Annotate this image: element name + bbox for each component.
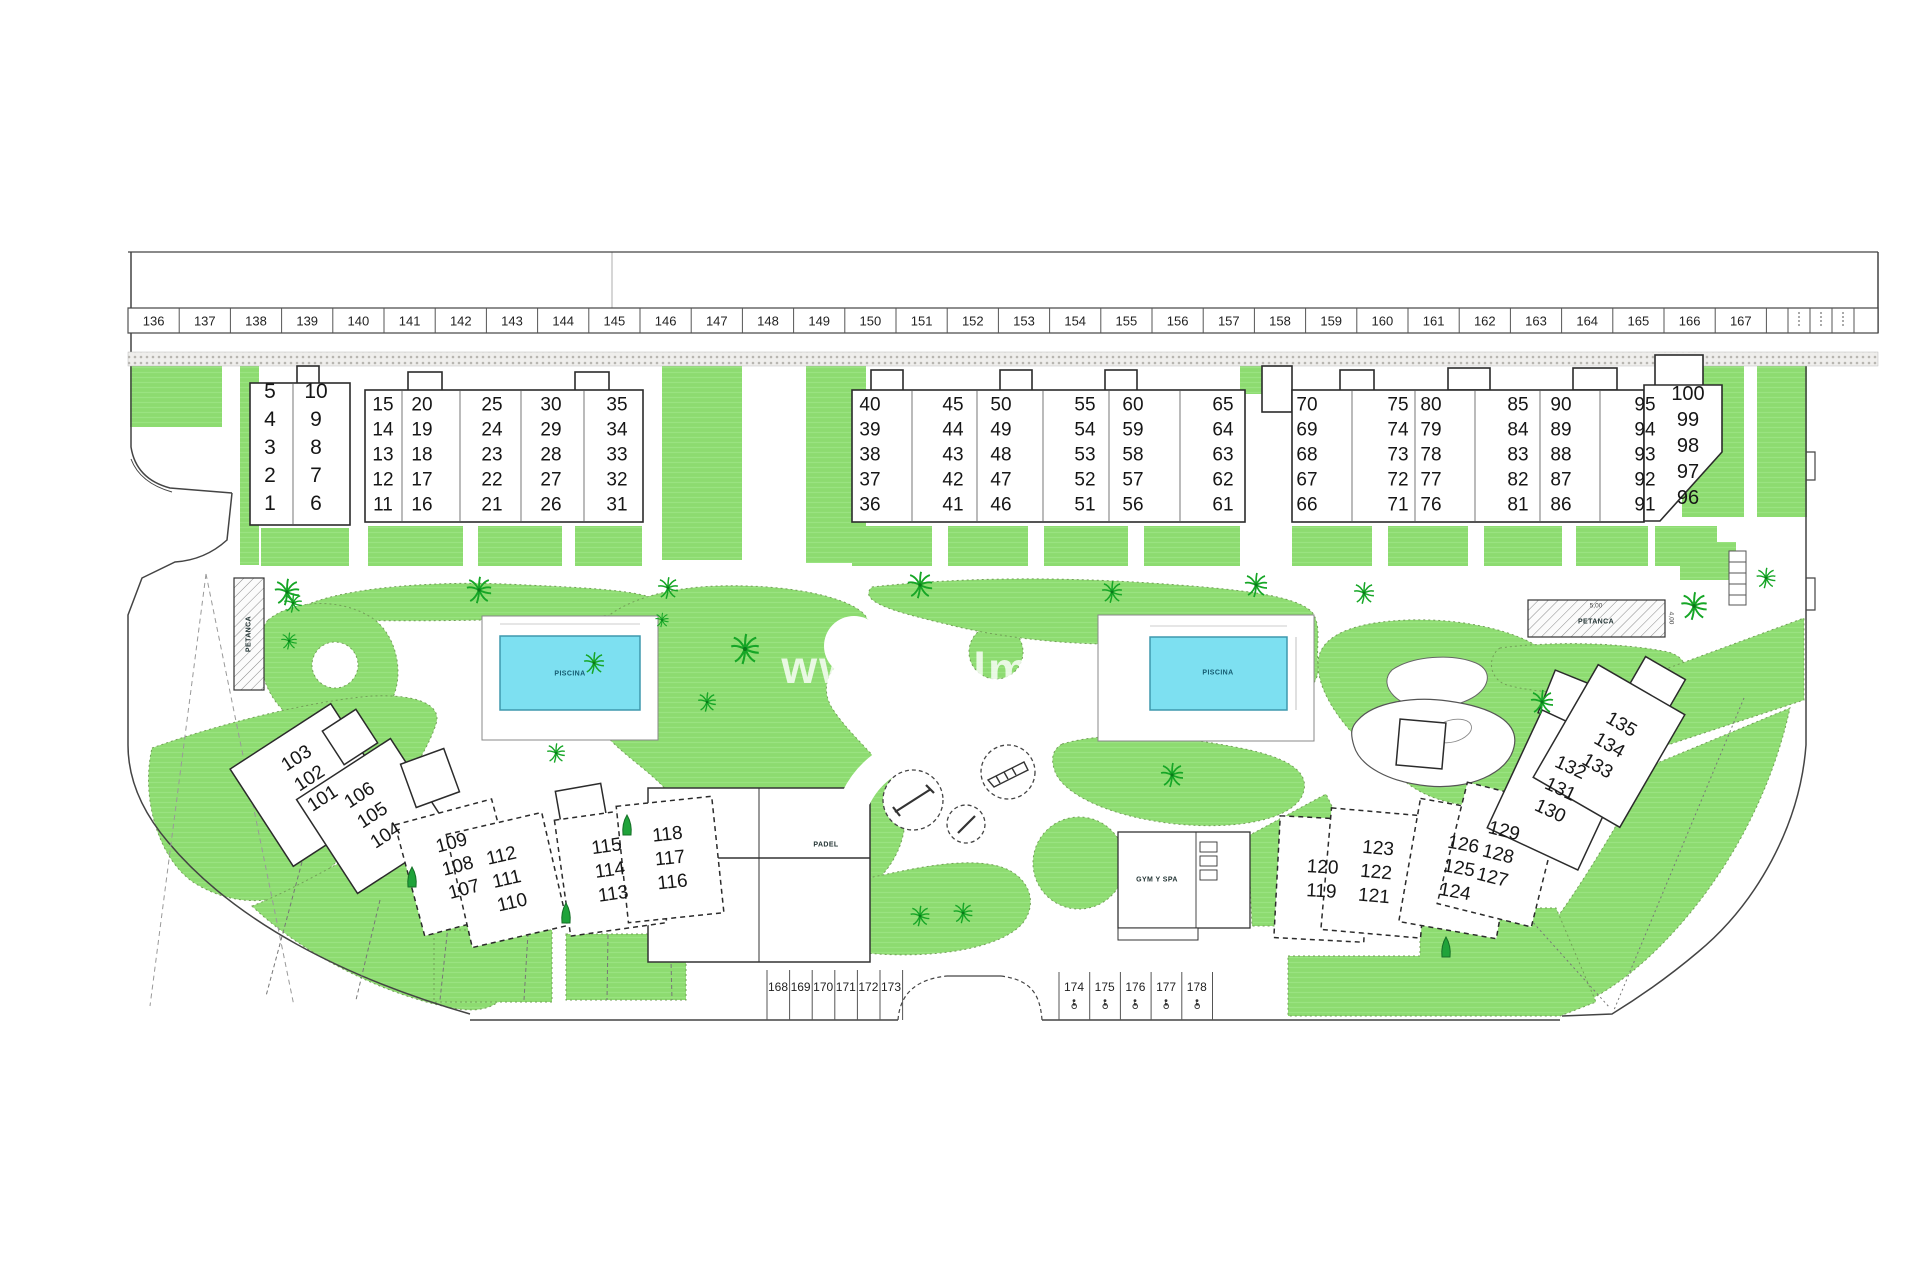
parking-space-label: 157: [1218, 313, 1240, 328]
sidewalk-band: [128, 352, 1878, 366]
unit-column: 20 19 18 17 16: [411, 393, 432, 518]
wheelchair-icon: [1133, 999, 1138, 1008]
parking-strip-top: [128, 252, 1878, 366]
unit-column: 90 89 88 87 86: [1550, 393, 1571, 518]
palm-icon: [1681, 592, 1706, 620]
parking-space-label: 172: [858, 980, 878, 994]
lawn-ring-hole: [312, 642, 358, 688]
unit-column: 45 44 43 42 41: [942, 393, 963, 518]
unit-group: 120 119: [1305, 855, 1339, 905]
unit-column: 95 94 93 92 91: [1634, 393, 1655, 518]
padel-label: PADEL: [813, 842, 838, 849]
parking-space-label: 156: [1167, 313, 1189, 328]
unit-column: 10 9 8 7 6: [304, 378, 327, 518]
unit-column: 70 69 68 67 66: [1296, 393, 1317, 518]
unit-column: 5 4 3 2 1: [264, 378, 276, 518]
site-plan: www dpalme PISCINA PISCINA PETANCA 5,00 …: [0, 0, 1920, 1280]
pool-west-label: PISCINA: [554, 671, 585, 678]
parking-space-label: 150: [860, 313, 882, 328]
parking-space-label: 141: [399, 313, 421, 328]
wheelchair-icon: [1164, 999, 1169, 1008]
parking-space-label: 138: [245, 313, 267, 328]
parking-space-label: 163: [1525, 313, 1547, 328]
parking-space-label: 171: [836, 980, 856, 994]
parking-space-label: 168: [768, 980, 788, 994]
unit-column: 75 74 73 72 71: [1387, 393, 1408, 518]
parking-space-label: 140: [348, 313, 370, 328]
parking-space-label: 136: [143, 313, 165, 328]
parking-space-label: 151: [911, 313, 933, 328]
parking-space-label: 139: [296, 313, 318, 328]
wheelchair-icon: [1103, 999, 1108, 1008]
petanca-height-dim: 4,00: [1668, 612, 1675, 625]
parking-ticks-bottom-left: [767, 970, 903, 1020]
parking-space-label: 173: [881, 980, 901, 994]
parking-space-label: 165: [1628, 313, 1650, 328]
building-block-11-35: [365, 390, 643, 522]
unit-column: 25 24 23 22 21: [481, 393, 502, 518]
parking-space-label: 146: [655, 313, 677, 328]
unit-column: 60 59 58 57 56: [1122, 393, 1143, 518]
parking-space-label: 174: [1064, 980, 1084, 994]
parking-space-label: 175: [1095, 980, 1115, 994]
unit-column: 65 64 63 62 61: [1212, 393, 1233, 518]
unit-column: 80 79 78 77 76: [1420, 393, 1441, 518]
petanca-west-label: PETANCA: [246, 616, 253, 652]
unit-column: 40 39 38 37 36: [859, 393, 880, 518]
parking-space-label: 178: [1187, 980, 1207, 994]
parking-space-label: 137: [194, 313, 216, 328]
sunbed-icons: [1200, 842, 1217, 880]
palm-icon: [547, 743, 565, 762]
parking-space-label: 149: [808, 313, 830, 328]
site-plan-graphics: [0, 0, 1920, 1280]
parking-space-label: 164: [1576, 313, 1598, 328]
unit-column: 30 29 28 27 26: [540, 393, 561, 518]
parking-space-label: 152: [962, 313, 984, 328]
unit-group: 123 122 121: [1357, 836, 1395, 910]
petanca-width-dim: 5,00: [1590, 603, 1603, 610]
pergola: [1729, 551, 1746, 605]
parking-space-label: 153: [1013, 313, 1035, 328]
unit-column: 50 49 48 47 46: [990, 393, 1011, 518]
parking-space-label: 176: [1125, 980, 1145, 994]
accessible-parking-icons: [1072, 999, 1200, 1008]
palm-icon: [1757, 568, 1776, 588]
pool-east-label: PISCINA: [1202, 670, 1233, 677]
palm-icon: [1354, 582, 1374, 604]
parking-space-label: 166: [1679, 313, 1701, 328]
wheelchair-icon: [1072, 999, 1077, 1008]
petanca-east-label: PETANCA: [1578, 619, 1614, 626]
parking-space-label: 148: [757, 313, 779, 328]
parking-space-label: 145: [604, 313, 626, 328]
unit-column: 15 14 13 12 11: [372, 393, 393, 518]
gym-spa-building: [1118, 832, 1250, 940]
parking-space-label: 170: [813, 980, 833, 994]
parking-space-label: 162: [1474, 313, 1496, 328]
parking-space-label: 160: [1372, 313, 1394, 328]
wheelchair-icon: [1195, 999, 1200, 1008]
unit-column: 55 54 53 52 51: [1074, 393, 1095, 518]
parking-space-label: 147: [706, 313, 728, 328]
parking-space-label: 154: [1064, 313, 1086, 328]
parking-space-label: 142: [450, 313, 472, 328]
parking-space-label: 143: [501, 313, 523, 328]
upper-buildings: [250, 355, 1722, 525]
parking-space-label: 159: [1320, 313, 1342, 328]
watermark-fragment: dpalme: [885, 642, 1058, 696]
parking-space-label: 167: [1730, 313, 1752, 328]
unit-column: 35 34 33 32 31: [606, 393, 627, 518]
gym-spa-label: GYM Y SPA: [1136, 877, 1178, 884]
unit-column: 85 84 83 82 81: [1507, 393, 1528, 518]
unit-column: 100 99 98 97 96: [1671, 381, 1704, 511]
parking-space-label: 169: [791, 980, 811, 994]
parking-space-label: 144: [552, 313, 574, 328]
parking-space-label: 155: [1116, 313, 1138, 328]
parking-space-label: 177: [1156, 980, 1176, 994]
watermark-prefix: www: [781, 640, 894, 694]
parking-space-label: 158: [1269, 313, 1291, 328]
parking-space-label: 161: [1423, 313, 1445, 328]
building-block-66-95: [1292, 390, 1644, 522]
building-block-36-65: [852, 390, 1245, 522]
